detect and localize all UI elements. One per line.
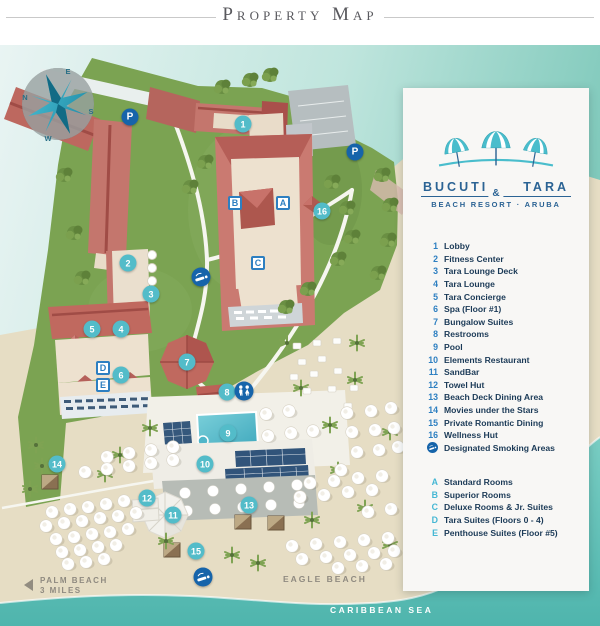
legend-item: DTara Suites (Floors 0 - 4) — [424, 514, 585, 527]
legend-label: Designated Smoking Areas — [444, 443, 555, 453]
legend-label: Elements Restaurant — [444, 355, 530, 365]
legend-item: 15Private Romantic Dining — [424, 416, 585, 429]
legend-item: 13Beach Deck Dining Area — [424, 391, 585, 404]
brand-wordmark: BUCUTI TARA & — [421, 180, 571, 197]
legend-label: Standard Rooms — [444, 477, 513, 487]
svg-text:S: S — [88, 107, 93, 116]
legend-item: 9Pool — [424, 341, 585, 354]
legend-item: 4Tara Lounge — [424, 278, 585, 291]
legend-label: Superior Rooms — [444, 490, 511, 500]
brand-umbrellas-icon — [426, 126, 566, 172]
legend-label: Spa (Floor #1) — [444, 304, 501, 314]
legend-key: 2 — [424, 254, 438, 264]
legend-item: CDeluxe Rooms & Jr. Suites — [424, 501, 585, 514]
legend-item: BSuperior Rooms — [424, 489, 585, 502]
svg-text:W: W — [44, 134, 52, 143]
legend-key: 14 — [424, 405, 438, 415]
legend-key: 16 — [424, 430, 438, 440]
legend-label: Tara Suites (Floors 0 - 4) — [444, 515, 544, 525]
legend-key: C — [424, 502, 438, 512]
legend-item: 14Movies under the Stars — [424, 404, 585, 417]
legend-key: 6 — [424, 304, 438, 314]
legend-item: 1Lobby — [424, 240, 585, 253]
legend-key: 13 — [424, 392, 438, 402]
legend-label: Lobby — [444, 241, 470, 251]
legend-item: 16Wellness Hut — [424, 429, 585, 442]
legend-lettered-list: AStandard RoomsBSuperior RoomsCDeluxe Ro… — [424, 476, 585, 539]
legend-key: 12 — [424, 380, 438, 390]
palm-beach-arrow-icon — [24, 579, 33, 591]
legend-label: Wellness Hut — [444, 430, 498, 440]
legend-key: A — [424, 477, 438, 487]
legend-numbered-list: 1Lobby2Fitness Center3Tara Lounge Deck4T… — [424, 240, 585, 454]
legend-label: Bungalow Suites — [444, 317, 513, 327]
legend-label: Pool — [444, 342, 463, 352]
legend-key: 11 — [424, 367, 438, 377]
legend-item: AStandard Rooms — [424, 476, 585, 489]
legend-item: 8Restrooms — [424, 328, 585, 341]
legend-label: Private Romantic Dining — [444, 418, 543, 428]
legend-item: 3Tara Lounge Deck — [424, 265, 585, 278]
legend-key: E — [424, 528, 438, 538]
legend-key: 7 — [424, 317, 438, 327]
brand-tagline: BEACH RESORT · ARUBA — [403, 200, 589, 209]
legend-item: 11SandBar — [424, 366, 585, 379]
legend-label: Penthouse Suites (Floor #5) — [444, 528, 558, 538]
legend-key: D — [424, 515, 438, 525]
eagle-beach-label: EAGLE BEACH — [283, 574, 367, 584]
legend-key: 4 — [424, 279, 438, 289]
caribbean-sea-label: CARIBBEAN SEA — [330, 605, 433, 615]
legend-label: Fitness Center — [444, 254, 504, 264]
smoking-icon — [424, 442, 438, 453]
legend-label: Restrooms — [444, 329, 489, 339]
legend-key: 9 — [424, 342, 438, 352]
legend-item: EPenthouse Suites (Floor #5) — [424, 526, 585, 539]
legend-item: 6Spa (Floor #1) — [424, 303, 585, 316]
legend-item: 12Towel Hut — [424, 379, 585, 392]
legend-label: Tara Lounge Deck — [444, 266, 518, 276]
palm-beach-label: PALM BEACH 3 MILES — [40, 576, 108, 596]
legend-key: 10 — [424, 355, 438, 365]
legend-item: 2Fitness Center — [424, 253, 585, 266]
brand-name-left: BUCUTI — [423, 180, 488, 194]
legend-item: 7Bungalow Suites — [424, 316, 585, 329]
legend-item: Designated Smoking Areas — [424, 442, 585, 455]
legend-label: Tara Concierge — [444, 292, 506, 302]
legend-key: 1 — [424, 241, 438, 251]
legend-item: 5Tara Concierge — [424, 290, 585, 303]
legend-key: 15 — [424, 418, 438, 428]
legend-key: 3 — [424, 266, 438, 276]
brand-name-right: TARA — [523, 180, 569, 194]
tara-suites-building — [48, 301, 152, 419]
legend-item: 10Elements Restaurant — [424, 353, 585, 366]
svg-text:N: N — [22, 93, 27, 102]
legend-key: 5 — [424, 292, 438, 302]
legend-key: B — [424, 490, 438, 500]
bucuti-main-building — [215, 113, 315, 331]
legend-label: Tara Lounge — [444, 279, 495, 289]
svg-text:E: E — [65, 67, 70, 76]
legend-key: 8 — [424, 329, 438, 339]
legend-label: Towel Hut — [444, 380, 484, 390]
bungalow-building — [160, 335, 214, 389]
legend-panel: BUCUTI TARA & BEACH RESORT · ARUBA 1Lobb… — [403, 88, 589, 591]
property-map-page: Property Map — [0, 0, 600, 626]
legend-label: Movies under the Stars — [444, 405, 539, 415]
legend-label: SandBar — [444, 367, 479, 377]
legend-label: Deluxe Rooms & Jr. Suites — [444, 502, 553, 512]
legend-label: Beach Deck Dining Area — [444, 392, 543, 402]
brand-ampersand: & — [488, 188, 503, 199]
